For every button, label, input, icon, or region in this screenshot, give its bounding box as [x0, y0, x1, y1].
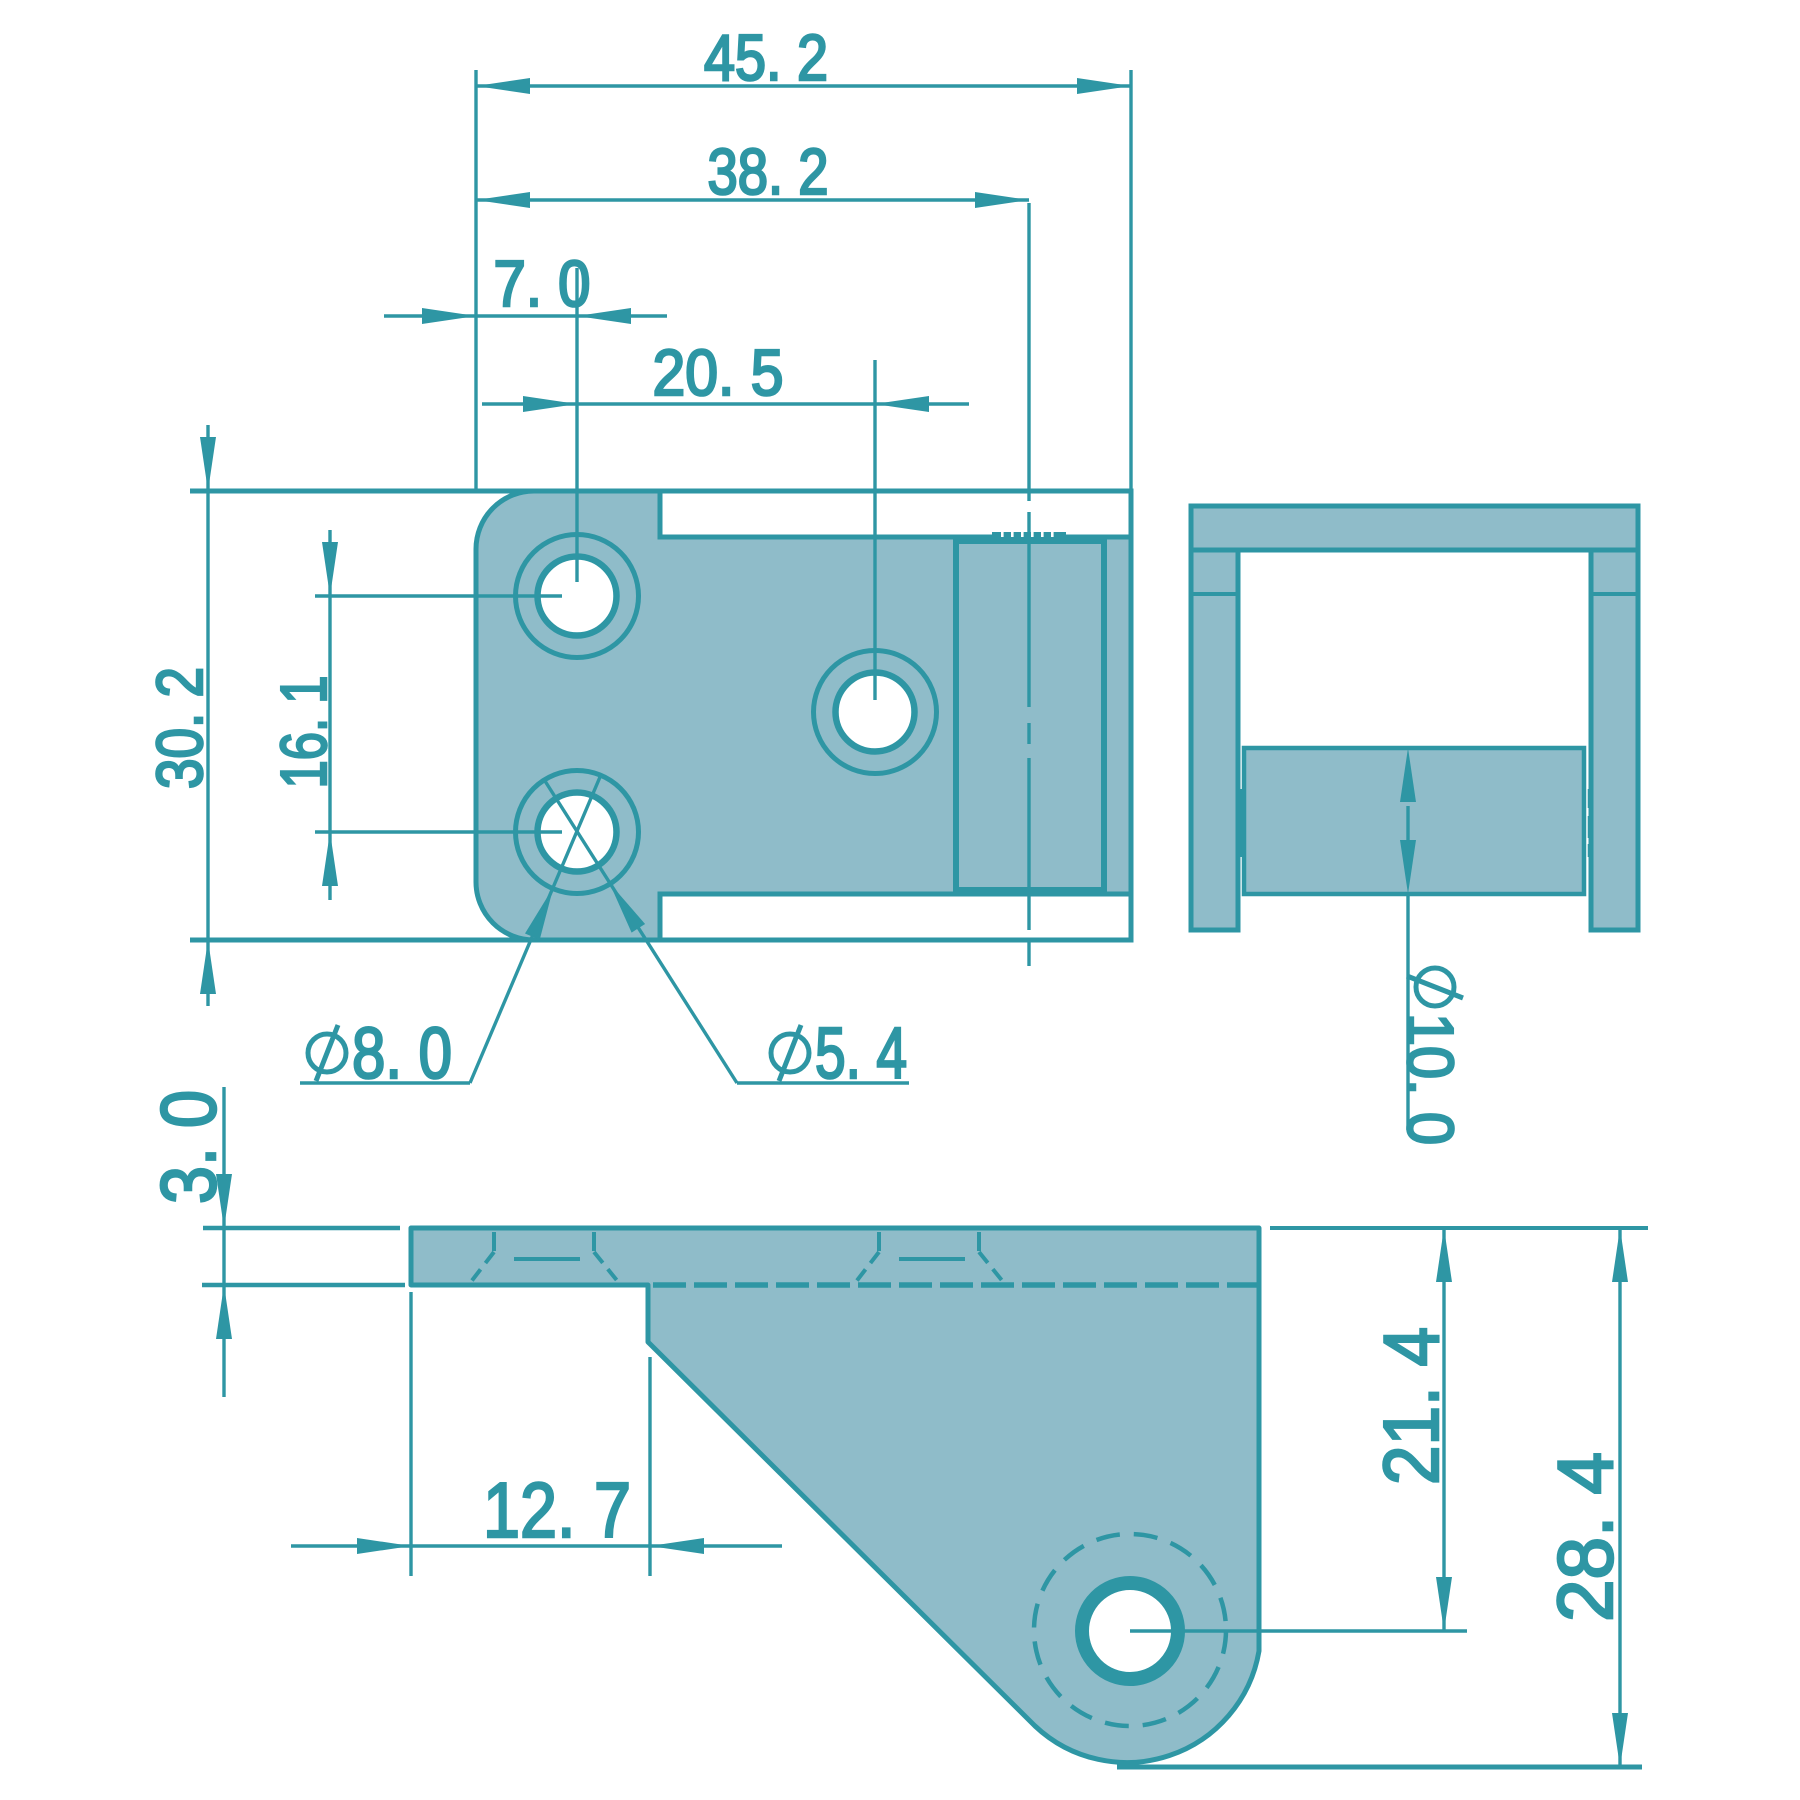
svg-text:16. 1: 16. 1 [267, 676, 340, 789]
svg-text:28. 4: 28. 4 [1541, 1452, 1629, 1622]
svg-text:38. 2: 38. 2 [708, 135, 829, 208]
svg-text:7. 0: 7. 0 [494, 247, 591, 320]
svg-text:8. 0: 8. 0 [352, 1014, 452, 1094]
svg-text:5. 4: 5. 4 [815, 1014, 907, 1094]
svg-text:45. 2: 45. 2 [704, 21, 828, 94]
svg-text:21. 4: 21. 4 [1367, 1327, 1455, 1485]
svg-text:30. 2: 30. 2 [143, 667, 216, 789]
svg-text:20. 5: 20. 5 [653, 336, 784, 409]
svg-text:3. 0: 3. 0 [144, 1090, 232, 1204]
svg-text:12. 7: 12. 7 [483, 1466, 631, 1554]
svg-text:10. 0: 10. 0 [1394, 1013, 1467, 1145]
